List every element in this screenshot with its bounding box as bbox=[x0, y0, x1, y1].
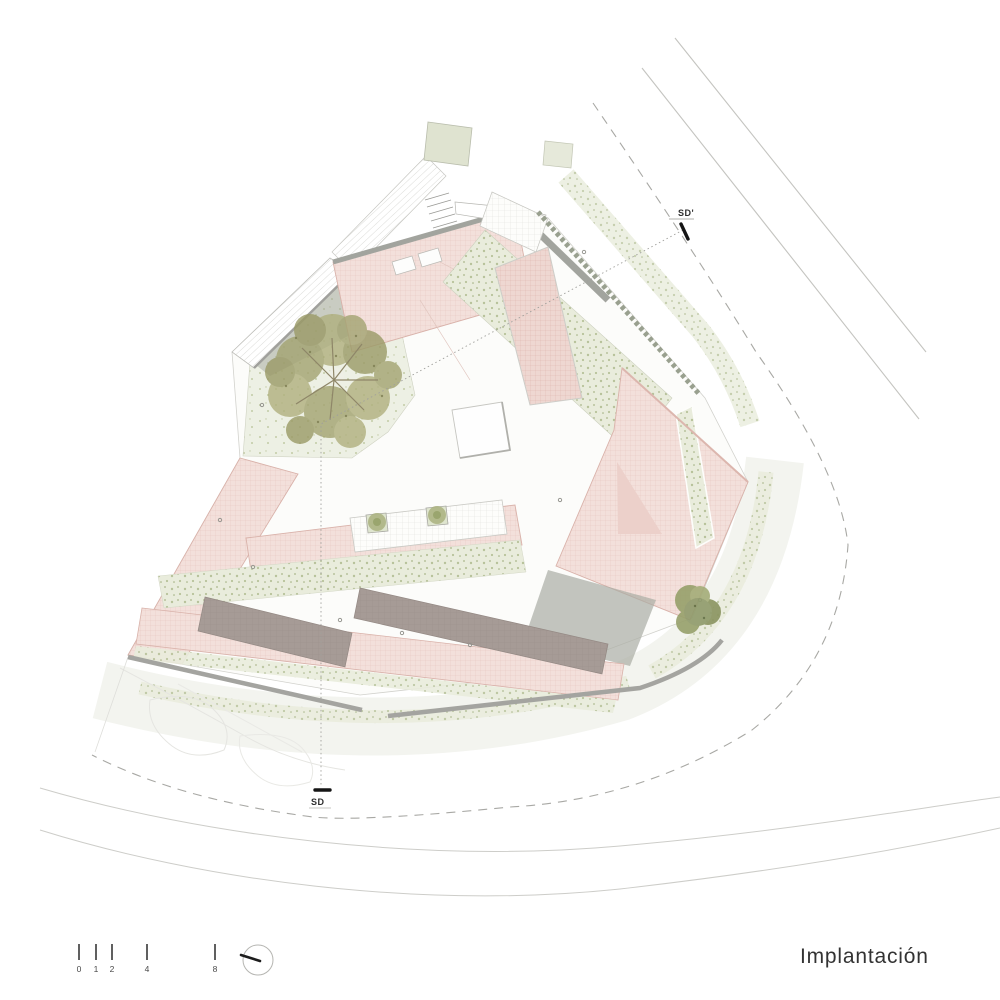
svg-text:4: 4 bbox=[145, 964, 150, 974]
section-marker-top: SD' bbox=[669, 208, 694, 239]
terrace-planter bbox=[366, 513, 388, 533]
section-marker-bottom: SD bbox=[309, 790, 331, 808]
sheet-title: Implantación bbox=[800, 945, 929, 968]
green-landing-square bbox=[424, 122, 472, 166]
site-plan-sheet: SD' SD 0 1 2 4 8 Implantación bbox=[0, 0, 1000, 1000]
street-curves-bottom bbox=[40, 788, 1000, 896]
svg-text:8: 8 bbox=[213, 964, 218, 974]
site-plan-drawing: SD' SD 0 1 2 4 8 Implantación bbox=[0, 0, 1000, 1000]
svg-text:2: 2 bbox=[110, 964, 115, 974]
svg-text:0: 0 bbox=[77, 964, 82, 974]
skylight-square bbox=[452, 402, 510, 458]
building-roof-plan bbox=[128, 122, 748, 716]
svg-text:SD: SD bbox=[311, 797, 325, 807]
svg-text:SD': SD' bbox=[678, 208, 694, 218]
north-arrow-icon bbox=[241, 945, 273, 975]
svg-text:1: 1 bbox=[94, 964, 99, 974]
terrace-planter bbox=[426, 506, 448, 526]
scale-bar: 0 1 2 4 8 bbox=[77, 944, 218, 974]
green-landing-square-2 bbox=[543, 141, 573, 168]
